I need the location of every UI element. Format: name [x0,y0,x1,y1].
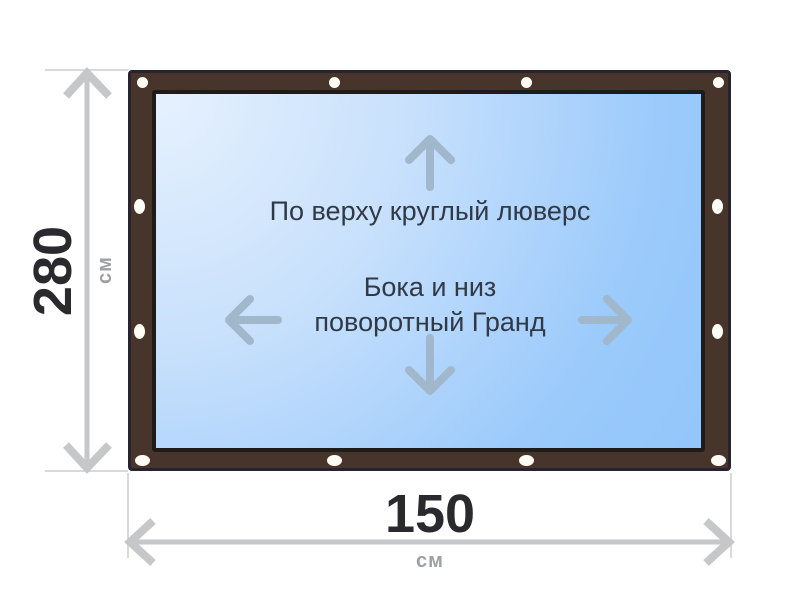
sides-bottom-annotation: Бока и низ поворотный Гранд [180,270,680,340]
width-value: 150 [280,487,580,541]
grommet-icon [327,455,342,466]
height-unit: см [94,230,116,310]
grommet-icon [713,77,724,88]
grommet-icon [134,324,145,339]
height-value: 280 [26,171,80,371]
grommet-icon [711,455,726,466]
grommet-icon [329,77,340,88]
width-unit: см [380,550,480,572]
grommet-icon [519,455,534,466]
dimension-arrow-down-icon [66,445,109,468]
grommet-icon [521,77,532,88]
sides-bottom-annotation-line2: поворотный Гранд [180,305,680,340]
grommet-icon [135,455,150,466]
grommet-icon [712,324,723,339]
dimension-arrow-left-icon [130,521,153,563]
grommet-icon [134,199,145,214]
size-diagram: По верху круглый люверс Бока и низ повор… [0,0,800,600]
top-edge-annotation: По верху круглый люверс [180,194,680,229]
grommet-icon [137,77,148,88]
sides-bottom-annotation-line1: Бока и низ [180,270,680,305]
dimension-arrow-right-icon [706,521,729,563]
dimension-arrow-up-icon [66,73,109,96]
grommet-icon [712,199,723,214]
